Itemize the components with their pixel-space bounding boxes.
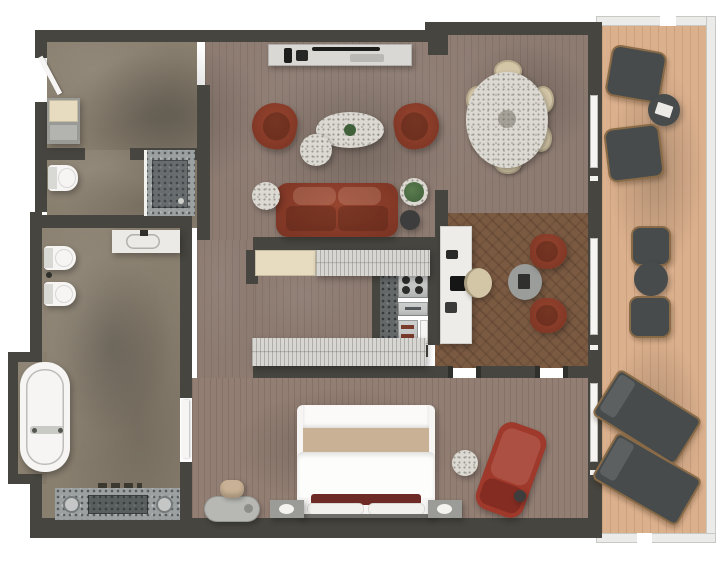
bedroom-balcony-door bbox=[590, 383, 598, 462]
armchair-cushion bbox=[536, 241, 558, 262]
burner bbox=[402, 286, 410, 294]
powder-toilet bbox=[48, 165, 78, 191]
towel-rail bbox=[98, 483, 142, 488]
wall-powder-a bbox=[35, 148, 85, 160]
railing-gap bbox=[637, 533, 652, 543]
coffee-table-round bbox=[300, 134, 332, 166]
tub-knob bbox=[58, 428, 63, 433]
bed-duvet bbox=[297, 452, 435, 498]
desk-lamp bbox=[446, 250, 458, 259]
bath-vanity bbox=[112, 230, 180, 253]
powder-shower bbox=[144, 150, 195, 216]
vanity-sink-right bbox=[156, 496, 173, 513]
wall-alcove-top bbox=[8, 352, 42, 362]
table-book bbox=[518, 274, 530, 289]
balcony-railing-top bbox=[596, 16, 716, 26]
wardrobe-top-beige bbox=[255, 250, 316, 276]
foyer-cabinet bbox=[47, 98, 80, 144]
door-stop bbox=[563, 366, 568, 378]
foyer-cabinet-top bbox=[49, 100, 78, 122]
bathtub bbox=[20, 362, 70, 472]
wall-alcove-left bbox=[8, 352, 18, 484]
console-tray bbox=[350, 54, 384, 62]
bidet-back bbox=[44, 284, 53, 304]
headboard bbox=[297, 514, 435, 518]
bedroom-side-table bbox=[452, 450, 478, 476]
wall-bottom bbox=[30, 518, 602, 538]
door-stop bbox=[448, 366, 453, 378]
wall-left-a bbox=[35, 30, 47, 58]
tub-basin bbox=[26, 369, 64, 465]
bedroom-accent-ball bbox=[514, 490, 526, 502]
toilet-tank bbox=[48, 167, 57, 189]
vanity-basin bbox=[88, 495, 148, 514]
table-book bbox=[655, 102, 674, 118]
burner bbox=[415, 276, 423, 284]
wall-bath-west-b bbox=[30, 478, 42, 520]
bathroom-door-leaf bbox=[182, 400, 189, 458]
study-balcony-door bbox=[590, 238, 598, 335]
sofa-side-table bbox=[252, 182, 280, 210]
wardrobe-top-ribbed bbox=[316, 250, 430, 276]
armchair-cushion bbox=[536, 305, 558, 326]
wardrobe-bottom bbox=[252, 338, 426, 366]
study-armchair-bottom bbox=[530, 298, 567, 333]
toilet-seat bbox=[55, 249, 73, 267]
sofa-back-cushion bbox=[338, 187, 381, 205]
sofa-seat-cushion bbox=[338, 206, 388, 231]
burner bbox=[415, 286, 423, 294]
toilet-paper-holder bbox=[46, 272, 52, 278]
dining-window bbox=[590, 95, 598, 168]
plant-stand bbox=[400, 178, 428, 206]
vanity-sink-left bbox=[63, 496, 80, 513]
tub-knob bbox=[32, 428, 37, 433]
burner bbox=[402, 276, 410, 284]
wall-bedroom-north-c bbox=[481, 366, 535, 378]
table-decor-plant bbox=[344, 124, 356, 136]
toilet-tank bbox=[44, 248, 53, 268]
dining-table bbox=[466, 72, 548, 168]
sofa-seat-cushion bbox=[286, 206, 336, 231]
bath-toilet bbox=[44, 246, 76, 270]
railing-gap bbox=[660, 16, 676, 26]
lamp bbox=[279, 504, 294, 514]
shower-glass bbox=[144, 150, 147, 216]
balcony-railing-bottom bbox=[596, 533, 716, 543]
lamp bbox=[437, 504, 452, 514]
dark-side-table bbox=[400, 210, 420, 230]
wall-top-dining bbox=[425, 22, 602, 35]
media-console bbox=[268, 44, 412, 66]
console-speaker bbox=[284, 48, 292, 63]
balcony-railing-right bbox=[706, 16, 716, 543]
door-stop bbox=[535, 366, 540, 378]
pouf bbox=[220, 480, 244, 498]
wall-bedroom-north-b bbox=[428, 366, 448, 378]
door-stop bbox=[476, 366, 481, 378]
drawer-handle bbox=[405, 307, 421, 310]
wall-bedroom-north-a bbox=[253, 366, 428, 378]
bedroom-bench bbox=[204, 496, 260, 522]
bed-throw bbox=[303, 428, 429, 452]
sofa-back-cushion bbox=[293, 187, 336, 205]
corridor-floor bbox=[255, 276, 372, 338]
window-handle bbox=[590, 345, 598, 350]
foyer-cabinet-bottom bbox=[49, 124, 78, 141]
vanity-sink bbox=[126, 234, 160, 249]
nightstand-right bbox=[428, 500, 462, 518]
bistro-chair bbox=[629, 296, 671, 338]
bath-bidet bbox=[44, 282, 76, 306]
nightstand-left bbox=[270, 500, 304, 518]
wall-living-closet bbox=[253, 237, 445, 250]
wall-bath-east-b bbox=[180, 462, 192, 520]
bed-foot-fold bbox=[303, 405, 429, 428]
bistro-chair bbox=[631, 226, 671, 266]
window-handle bbox=[590, 176, 598, 181]
king-bed bbox=[297, 405, 435, 518]
potted-plant bbox=[404, 182, 424, 202]
double-vanity bbox=[55, 488, 180, 520]
study-round-table bbox=[508, 264, 542, 300]
wall-powder-bath bbox=[35, 215, 192, 228]
balcony-round-table bbox=[648, 94, 680, 126]
bidet-bowl bbox=[55, 285, 73, 303]
kitchen-drawer bbox=[398, 302, 428, 316]
wall-dining-stub-top bbox=[428, 35, 448, 55]
toilet-seat bbox=[58, 168, 76, 188]
wall-bath-west-a bbox=[30, 212, 42, 357]
bench-detail bbox=[244, 504, 253, 513]
console-decor bbox=[296, 50, 308, 61]
floor-plan bbox=[0, 0, 726, 572]
balcony-chair bbox=[603, 123, 665, 183]
oven-handle bbox=[401, 325, 414, 329]
dining-centerpiece bbox=[498, 110, 516, 128]
vanity-faucet bbox=[140, 230, 148, 236]
sofa bbox=[276, 183, 398, 237]
bistro-table bbox=[634, 262, 668, 296]
wall-bath-east-a bbox=[180, 228, 192, 398]
shower-drain bbox=[178, 198, 184, 204]
wall-bedroom-north-d bbox=[568, 366, 588, 378]
study-armchair-top bbox=[530, 234, 567, 269]
desk-chair bbox=[464, 268, 492, 298]
console-soundbar bbox=[312, 47, 380, 51]
wall-alcove-bottom bbox=[8, 474, 42, 484]
wall-foyer-living bbox=[197, 85, 210, 240]
armchair-cushion bbox=[261, 110, 292, 142]
desk-notepad bbox=[445, 302, 457, 313]
armchair-cushion bbox=[399, 110, 430, 142]
wall-top-main bbox=[40, 30, 435, 42]
